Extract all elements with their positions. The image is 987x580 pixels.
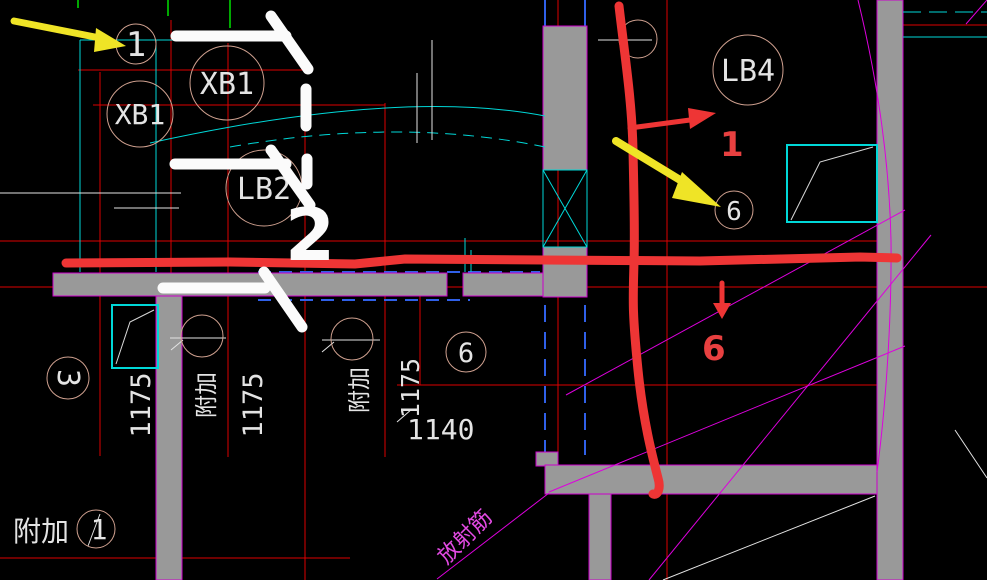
fujia-mid-label: 附加 bbox=[347, 367, 373, 413]
wall-left-vertical bbox=[156, 296, 182, 580]
white-arrow-slash-1 bbox=[271, 16, 308, 69]
red-marker-vertical bbox=[619, 6, 659, 494]
lb4-label: LB4 bbox=[721, 54, 775, 89]
detail-box-right bbox=[787, 145, 877, 222]
yellow-arrow-mid-shaft bbox=[616, 141, 690, 186]
fangshejin-label: 放射筋 bbox=[433, 505, 497, 569]
xb1-left-label: XB1 bbox=[115, 98, 166, 131]
slab-arc-dashed bbox=[230, 132, 545, 147]
red-arrow-1-shaft bbox=[630, 120, 690, 128]
red-note-1: 1 bbox=[720, 125, 744, 165]
bubble-3-label: 3 bbox=[50, 369, 85, 387]
red-note-6: 6 bbox=[702, 329, 726, 369]
wall-bottom-notch bbox=[536, 452, 558, 466]
structural-plan-svg: 1 XB1 XB1 LB2 LB4 6 6 3 1 1175 1175 1175… bbox=[0, 0, 987, 580]
cyan-arcs bbox=[80, 12, 987, 272]
axis-1-bottom-label: 1 bbox=[91, 513, 108, 546]
yellow-arrow-topleft-shaft bbox=[14, 21, 100, 38]
wall-bottom-horizontal bbox=[545, 465, 877, 494]
dim-1175-c: 1175 bbox=[396, 358, 425, 418]
white-diagonal bbox=[663, 496, 875, 580]
fujia-left-label: 附加 bbox=[194, 372, 220, 418]
red-arrow-6-head bbox=[713, 303, 731, 319]
wall-center-column bbox=[543, 26, 587, 170]
xb1-top-label: XB1 bbox=[200, 67, 254, 102]
green-ticks bbox=[78, 0, 230, 28]
wall-bottom-vertical bbox=[589, 494, 611, 580]
shaft-opening bbox=[543, 170, 587, 247]
detail-polyline-right bbox=[791, 147, 873, 220]
bubble-6-upper-label: 6 bbox=[726, 197, 742, 227]
bubble-6-mid-label: 6 bbox=[458, 338, 474, 369]
dim-1140: 1140 bbox=[407, 413, 474, 446]
wall-center-junction bbox=[543, 247, 587, 297]
bubble-section-mid-a bbox=[181, 315, 223, 357]
axis-1-top-label: 1 bbox=[126, 25, 146, 65]
detail-polyline-left bbox=[116, 310, 154, 364]
white-diagonal bbox=[955, 430, 987, 478]
dim-1175-b: 1175 bbox=[238, 372, 269, 437]
red-marker-horizontal bbox=[66, 257, 897, 264]
white-note-2: 2 bbox=[285, 193, 335, 277]
fujia-bottom-label: 附加 bbox=[13, 515, 69, 548]
wall-right-vertical bbox=[877, 0, 903, 580]
wall-main-horizontal-b bbox=[463, 273, 543, 296]
cad-drawing-canvas: 1 XB1 XB1 LB2 LB4 6 6 3 1 1175 1175 1175… bbox=[0, 0, 987, 580]
red-arrow-1-head bbox=[688, 108, 716, 129]
detail-box-left bbox=[112, 305, 158, 368]
bubble-section-mid-b bbox=[331, 318, 373, 360]
dim-1175-a: 1175 bbox=[126, 372, 157, 437]
lb2-label: LB2 bbox=[237, 172, 291, 207]
